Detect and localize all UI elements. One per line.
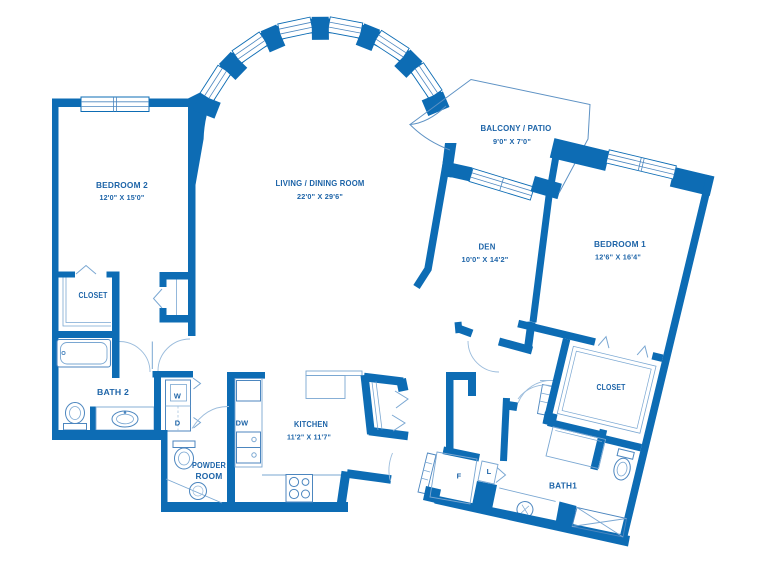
- svg-text:F: F: [457, 472, 462, 481]
- svg-text:11'2" X 11'7": 11'2" X 11'7": [287, 433, 331, 442]
- svg-text:POWDER: POWDER: [192, 461, 226, 470]
- svg-text:CLOSET: CLOSET: [597, 383, 626, 392]
- svg-text:9'0" X 7'0": 9'0" X 7'0": [493, 137, 531, 146]
- svg-text:22'0" X 29'6": 22'0" X 29'6": [297, 192, 343, 201]
- svg-text:BEDROOM 2: BEDROOM 2: [96, 181, 148, 190]
- svg-text:BALCONY / PATIO: BALCONY / PATIO: [481, 124, 552, 133]
- svg-text:BATH1: BATH1: [549, 482, 577, 491]
- svg-text:10'0" X 14'2": 10'0" X 14'2": [462, 255, 509, 264]
- svg-text:BATH 2: BATH 2: [97, 388, 129, 397]
- svg-text:DEN: DEN: [479, 243, 496, 252]
- svg-text:L: L: [487, 467, 492, 476]
- svg-text:12'0" X 15'0": 12'0" X 15'0": [100, 193, 145, 202]
- svg-text:W: W: [174, 392, 181, 401]
- svg-text:DW: DW: [236, 419, 249, 428]
- svg-text:ROOM: ROOM: [196, 472, 223, 481]
- svg-text:12'6" X 16'4": 12'6" X 16'4": [595, 253, 641, 262]
- svg-text:D: D: [175, 419, 181, 428]
- svg-text:CLOSET: CLOSET: [79, 291, 108, 300]
- svg-text:LIVING / DINING ROOM: LIVING / DINING ROOM: [276, 179, 365, 188]
- svg-text:BEDROOM 1: BEDROOM 1: [594, 240, 646, 249]
- svg-text:KITCHEN: KITCHEN: [294, 420, 328, 429]
